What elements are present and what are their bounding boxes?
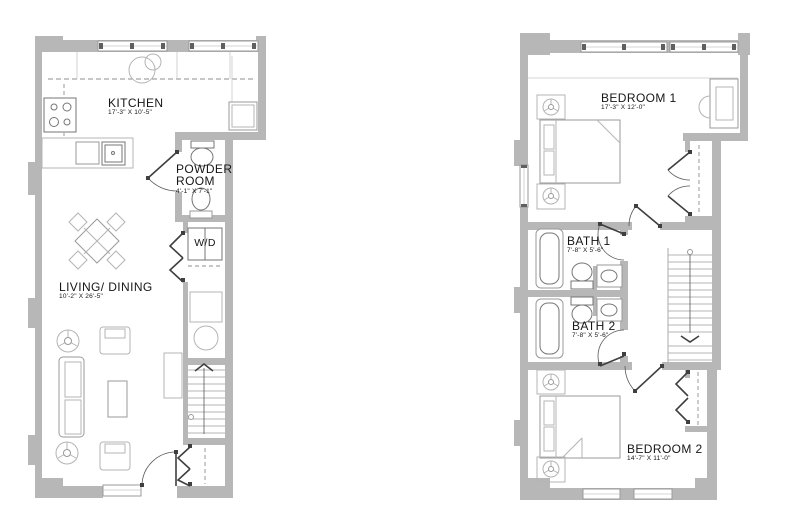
window xyxy=(103,485,141,496)
armchair xyxy=(100,327,130,354)
room-dimensions: 14'-7" X 11'-0" xyxy=(627,456,703,463)
bathtub xyxy=(536,299,563,358)
room-name: BEDROOM 2 xyxy=(627,442,703,456)
window xyxy=(581,42,667,52)
stair-direction-arrow xyxy=(681,336,699,342)
bedroom2-closet xyxy=(676,370,698,426)
window xyxy=(520,165,528,207)
room-name: KITCHEN xyxy=(108,96,163,110)
vanity-sink xyxy=(597,265,622,287)
nightstand xyxy=(537,370,565,394)
hall-closet xyxy=(668,145,699,216)
toilet xyxy=(571,263,593,289)
coffee-table xyxy=(108,381,127,417)
room-label-powder-room: POWDER ROOM 4'-1" X 7'-1" xyxy=(176,163,238,195)
room-dimensions: 10'-2" X 26'-5" xyxy=(59,294,153,301)
stairs-up xyxy=(188,364,225,434)
nightstand xyxy=(537,184,565,209)
bath1-fixtures xyxy=(536,222,626,289)
desk xyxy=(699,79,738,128)
window xyxy=(98,41,167,51)
room-dimensions: 17'-3" X 10'-5" xyxy=(108,110,163,117)
side-table-lamp xyxy=(56,442,78,464)
shelf xyxy=(190,292,222,322)
dining-set xyxy=(69,213,125,269)
armchair xyxy=(100,442,130,470)
room-name: BATH 1 xyxy=(567,234,611,248)
room-label-bath-2: BATH 2 7'-8" X 5'-6" xyxy=(572,320,616,340)
vanity-sink xyxy=(597,299,622,321)
nightstand xyxy=(537,95,565,119)
stove xyxy=(44,98,76,132)
room-name: LIVING/ DINING xyxy=(59,280,153,294)
room-name: POWDER ROOM xyxy=(176,162,232,188)
room-label-bedroom-2: BEDROOM 2 14'-7" X 11'-0" xyxy=(627,443,703,463)
room-name: W/D xyxy=(194,237,216,249)
console-table xyxy=(164,353,182,398)
room-label-kitchen: KITCHEN 17'-3" X 10'-5" xyxy=(108,97,163,117)
side-table-lamp xyxy=(57,330,79,352)
powder-room-door xyxy=(146,150,179,191)
floor-plan-drawing xyxy=(0,0,800,518)
stairs-down xyxy=(668,248,712,362)
bathtub xyxy=(536,229,563,288)
room-name: BEDROOM 1 xyxy=(601,91,677,105)
room-label-washer-dryer: W/D xyxy=(188,238,222,249)
window xyxy=(583,489,620,499)
water-heater xyxy=(194,326,218,350)
sofa xyxy=(59,357,84,437)
room-dimensions: 7'-8" X 5'-6" xyxy=(572,333,616,340)
entry-closet xyxy=(178,444,205,486)
room-name: BATH 2 xyxy=(572,319,616,333)
bedroom2-furniture xyxy=(537,370,620,482)
room-dimensions: 7'-8" X 5'-6" xyxy=(567,248,611,255)
room-dimensions: 17'-3" X 12'-0" xyxy=(601,105,677,112)
floor-plan-canvas: KITCHEN 17'-3" X 10'-5" POWDER ROOM 4'-1… xyxy=(0,0,800,518)
washer-dryer-bifold-door xyxy=(170,231,185,282)
utility-closet xyxy=(190,292,222,350)
kitchen-sink xyxy=(102,142,125,165)
window xyxy=(670,42,738,52)
room-dimensions: 4'-1" X 7'-1" xyxy=(176,189,238,196)
room-label-living-dining: LIVING/ DINING 10'-2" X 26'-5" xyxy=(59,281,153,301)
refrigerator xyxy=(229,56,257,130)
bed xyxy=(540,396,620,458)
window xyxy=(634,489,672,499)
living-furniture xyxy=(56,327,182,470)
room-label-bedroom-1: BEDROOM 1 17'-3" X 12'-0" xyxy=(601,92,677,112)
room-label-bath-1: BATH 1 7'-8" X 5'-6" xyxy=(567,235,611,255)
bedroom1-door xyxy=(629,204,662,228)
entry-door xyxy=(140,450,178,487)
window xyxy=(189,41,258,51)
bed xyxy=(540,120,620,183)
